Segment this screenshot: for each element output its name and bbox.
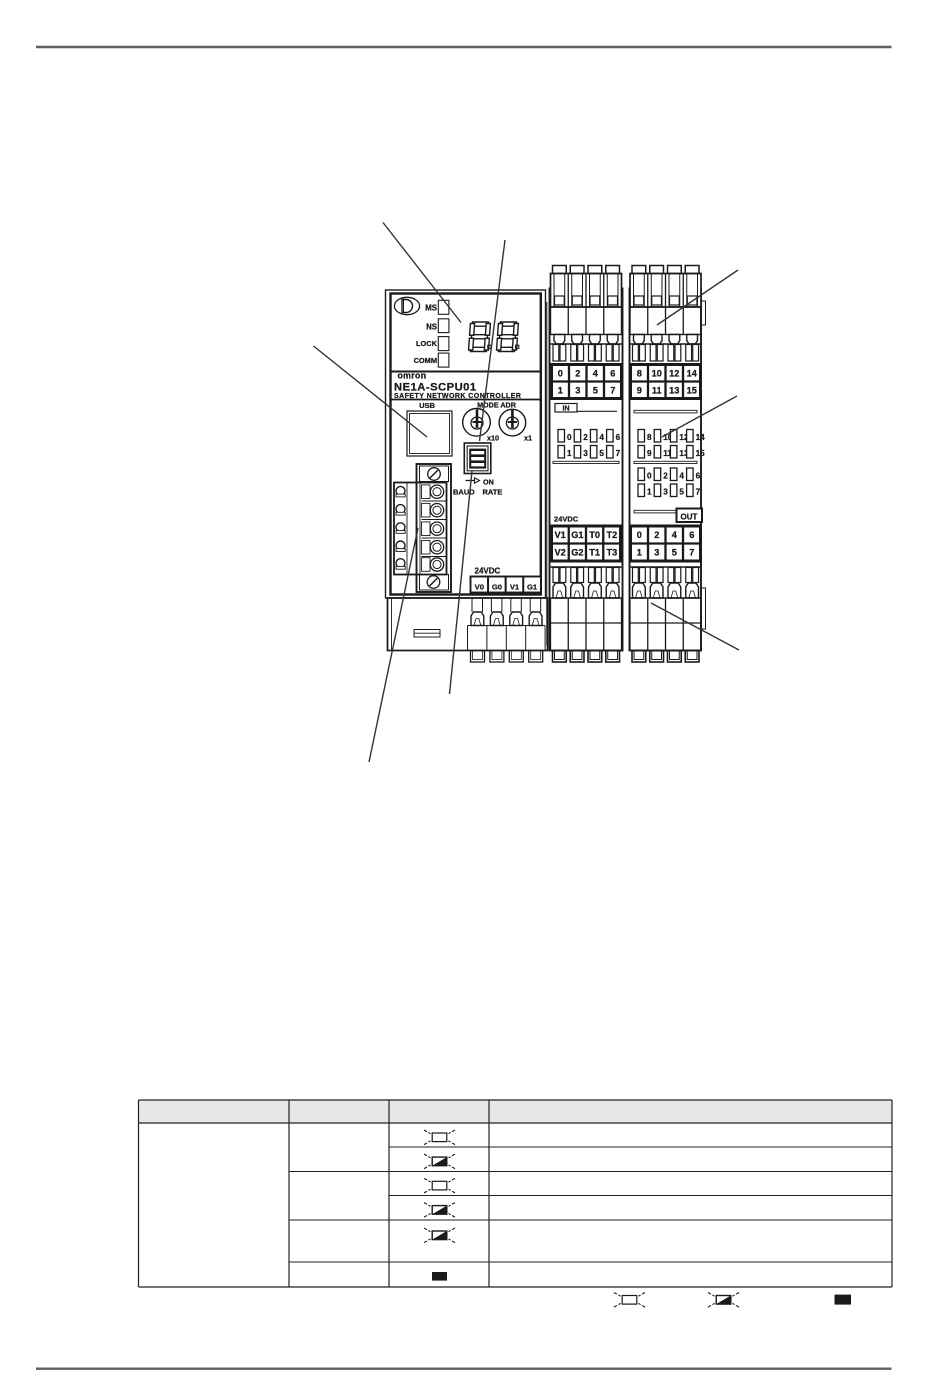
svg-text:1: 1 [567,449,572,458]
svg-text:V2: V2 [555,548,566,558]
svg-text:10: 10 [652,368,662,378]
svg-text:USB: USB [419,401,435,410]
svg-text:4: 4 [593,368,599,378]
svg-text:2: 2 [654,530,659,540]
svg-text:V1: V1 [555,530,566,540]
svg-text:9: 9 [637,385,642,395]
svg-text:ON: ON [483,478,494,487]
svg-text:3: 3 [663,488,668,497]
svg-text:LOCK: LOCK [416,339,438,348]
svg-text:T1: T1 [589,548,600,558]
svg-text:1: 1 [558,385,563,395]
svg-text:T2: T2 [607,530,618,540]
svg-text:15: 15 [696,449,706,458]
svg-text:9: 9 [647,449,652,458]
svg-text:8: 8 [637,368,642,378]
svg-text:1: 1 [637,548,642,558]
svg-text:0: 0 [558,368,563,378]
svg-text:7: 7 [610,385,615,395]
svg-text:3: 3 [583,449,588,458]
svg-text:G2: G2 [571,548,583,558]
svg-text:7: 7 [696,488,701,497]
svg-text:0: 0 [637,530,642,540]
svg-text:2: 2 [663,472,668,481]
svg-text:x1: x1 [524,434,532,443]
svg-text:7: 7 [689,548,694,558]
svg-text:x10: x10 [487,434,499,443]
svg-text:G0: G0 [492,583,502,592]
svg-text:RATE: RATE [483,488,503,497]
svg-text:G1: G1 [527,583,538,592]
svg-text:3: 3 [575,385,580,395]
svg-text:12: 12 [669,368,679,378]
svg-text:13: 13 [669,385,679,395]
svg-text:5: 5 [593,385,598,395]
svg-text:7: 7 [616,449,621,458]
svg-text:0: 0 [647,472,652,481]
svg-text:6: 6 [610,368,615,378]
svg-text:0: 0 [567,433,572,442]
svg-text:omron: omron [398,371,427,381]
svg-text:COMM: COMM [414,356,437,365]
svg-text:5: 5 [679,488,684,497]
svg-text:NE1A-SCPU01: NE1A-SCPU01 [394,382,477,394]
svg-text:11: 11 [652,385,662,395]
svg-text:5: 5 [599,449,604,458]
svg-text:2: 2 [583,433,588,442]
svg-text:IN: IN [563,406,570,413]
svg-text:OUT: OUT [681,512,698,521]
svg-text:4: 4 [672,530,678,540]
svg-text:24VDC: 24VDC [554,515,579,524]
svg-text:3: 3 [654,548,659,558]
svg-text:T3: T3 [607,548,618,558]
svg-text:15: 15 [687,385,697,395]
svg-text:5: 5 [672,548,677,558]
svg-text:V1: V1 [510,583,520,592]
svg-text:6: 6 [689,530,694,540]
svg-text:14: 14 [696,433,706,442]
svg-text:SAFETY NETWORK CONTROLLER: SAFETY NETWORK CONTROLLER [394,393,521,400]
svg-text:4: 4 [599,433,604,442]
svg-text:2: 2 [575,368,580,378]
svg-text:MS: MS [425,304,437,313]
svg-text:BAUD: BAUD [453,488,475,497]
svg-text:6: 6 [696,472,701,481]
svg-text:NS: NS [426,323,437,332]
svg-text:G1: G1 [571,530,583,540]
svg-text:14: 14 [687,368,698,378]
svg-text:1: 1 [647,488,652,497]
svg-text:6: 6 [616,433,621,442]
svg-text:8: 8 [647,433,652,442]
svg-text:24VDC: 24VDC [475,566,501,575]
svg-text:4: 4 [679,472,684,481]
svg-text:T0: T0 [589,530,600,540]
svg-text:V0: V0 [475,583,484,592]
